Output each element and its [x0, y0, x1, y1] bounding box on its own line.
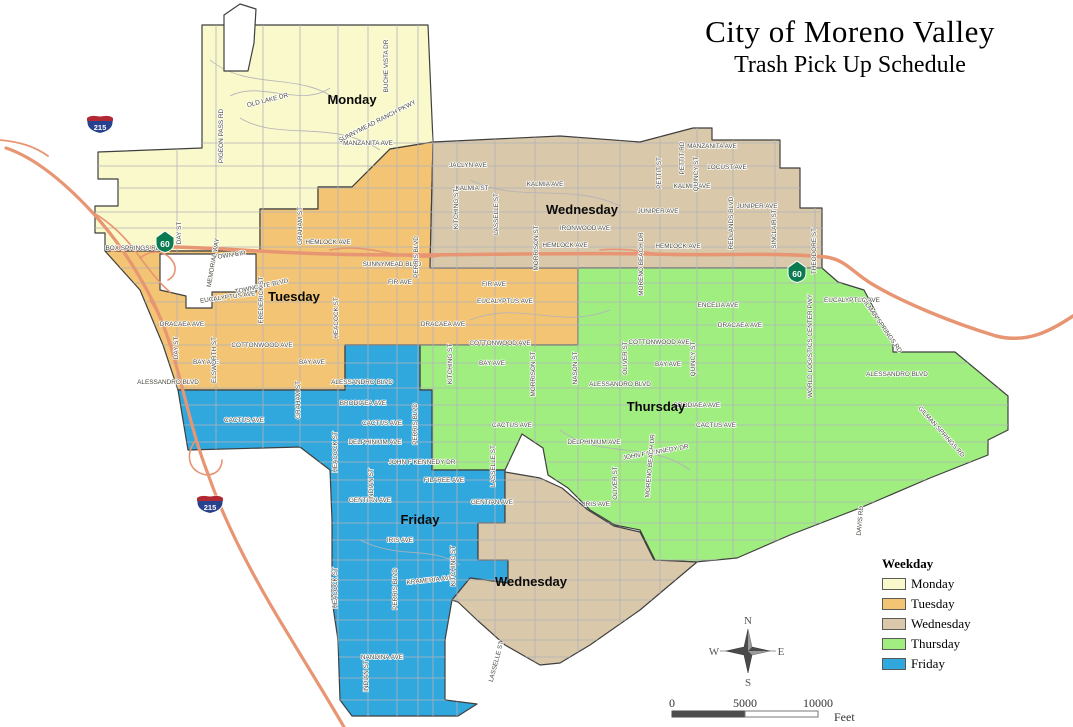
street-label: EUCALYPTUS AVE — [477, 298, 533, 305]
street-label: INDIAN ST — [368, 468, 375, 500]
street-label: LOCUST AVE — [707, 164, 747, 171]
legend-label: Friday — [911, 656, 945, 672]
street-label: ENCELIA AVE — [698, 302, 739, 309]
svg-text:60: 60 — [792, 269, 802, 279]
street-label: JOHN F KENNEDY DR — [389, 459, 456, 466]
street-label: JUNIPER AVE — [736, 203, 777, 210]
svg-text:215: 215 — [94, 123, 107, 132]
street-label: OLIVER ST — [612, 466, 619, 499]
street-label: KALMIA AVE — [674, 183, 711, 190]
street-label: HEACOCK ST — [332, 567, 339, 609]
scale-unit: Feet — [834, 710, 855, 724]
street-label: GRAHAM ST — [297, 207, 304, 245]
legend-swatch — [882, 578, 906, 590]
street-label: DELPHINIUM AVE — [567, 439, 620, 446]
legend: Weekday MondayTuesdayWednesdayThursdayFr… — [882, 556, 971, 676]
street-label: NASON ST — [572, 352, 579, 385]
scale-tick: 10000 — [803, 696, 833, 710]
street-label: GENTIAN AVE — [471, 499, 513, 506]
street-label: BAY AVE — [479, 360, 505, 367]
street-label: LASSELLE ST — [488, 640, 506, 682]
scale-ticks: 0500010000 — [669, 696, 833, 710]
street-label: BAY AVE — [299, 359, 325, 366]
compass-w: W — [709, 646, 720, 658]
legend-label: Tuesday — [911, 596, 955, 612]
street-label: LASSELLE ST — [490, 445, 497, 487]
street-label: BUCHE VISTA DR — [383, 39, 390, 92]
street-label: IRIS AVE — [584, 501, 610, 508]
street-label: HEACOCK ST — [332, 431, 339, 473]
page: { "title": { "line1": "City of Moreno Va… — [0, 0, 1073, 727]
zone-label: Friday — [400, 512, 440, 527]
zone-label: Thursday — [627, 399, 686, 414]
street-label: KITCHING ST — [447, 344, 454, 385]
zone-label: Wednesday — [495, 574, 568, 589]
legend-label: Thursday — [911, 636, 960, 652]
street-label: KALMIA AVE — [527, 181, 564, 188]
street-label: FREDERICK ST — [258, 276, 265, 323]
street-label: CACTUS AVE — [696, 422, 736, 429]
street-label: COTTONWOOD AVE — [628, 339, 689, 346]
interstate-215-shield: 215 — [197, 496, 223, 514]
street-label: HEMLOCK AVE — [542, 242, 587, 249]
svg-text:215: 215 — [204, 503, 217, 512]
zone-label: Wednesday — [546, 202, 619, 217]
zone-label: Monday — [327, 92, 377, 107]
street-label: ALESSANDRO BLVD — [331, 379, 393, 386]
street-label: THEODORE ST — [811, 228, 818, 274]
street-label: IRIS AVE — [387, 537, 413, 544]
street-label: LASSELLE ST — [493, 193, 500, 235]
legend-swatch — [882, 638, 906, 650]
street-label: SINCLAIR ST — [771, 209, 778, 249]
street-label: MORRISON ST — [533, 225, 540, 270]
street-label: BOX SPRINGS RD — [105, 245, 160, 252]
street-label: PERRIS BLVD — [412, 403, 419, 445]
street-label: DELPHINIUM AVE — [348, 439, 401, 446]
street-label: PERRIS BLVD — [392, 568, 399, 610]
street-label: PIGEON PASS RD — [218, 109, 225, 164]
legend-heading: Weekday — [882, 556, 971, 572]
street-label: NANDINA AVE — [361, 654, 403, 661]
compass-n: N — [744, 615, 752, 627]
street-label: FIR AVE — [482, 281, 506, 288]
legend-item: Monday — [882, 576, 971, 592]
zone-label: Tuesday — [268, 289, 321, 304]
legend-swatch — [882, 598, 906, 610]
street-label: HEMLOCK AVE — [655, 243, 700, 250]
street-label: HEACOCK ST — [333, 297, 340, 339]
map-title-line2: Trash Pick Up Schedule — [640, 52, 1060, 79]
street-label: CACTUS AVE — [492, 422, 532, 429]
map-title: City of Moreno Valley Trash Pick Up Sche… — [640, 14, 1060, 79]
svg-text:60: 60 — [160, 239, 170, 249]
street-label: DRACAEA AVE — [718, 322, 762, 329]
interstate-215-shield: 215 — [87, 116, 113, 134]
street-label: CACTUS AVE — [224, 417, 264, 424]
street-label: PETTIT ST — [656, 157, 663, 189]
street-label: EUCALYPTUS AVE — [824, 297, 880, 304]
street-label: DRACAEA AVE — [421, 321, 465, 328]
street-label: QUINCY ST — [693, 157, 700, 192]
street-label: FILAREE AVE — [424, 477, 464, 484]
street-label: JACLYN AVE — [449, 162, 487, 169]
legend-swatch — [882, 658, 906, 670]
street-label: MORRISON ST — [530, 351, 537, 396]
street-label: BRODIAEA AVE — [340, 400, 386, 407]
street-label: PETTIT RD — [679, 141, 686, 174]
map-title-line1: City of Moreno Valley — [640, 14, 1060, 50]
street-label: DAVIS RD — [856, 505, 866, 536]
street-label: FIR AVE — [388, 279, 412, 286]
street-label: ELSWORTH ST — [211, 337, 218, 383]
street-label: MANZANITA AVE — [687, 143, 737, 150]
street-label: DAY ST — [173, 337, 180, 360]
compass-rose: N S W E — [709, 615, 785, 689]
street-label: DRACAEA AVE — [160, 321, 204, 328]
legend-item: Tuesday — [882, 596, 971, 612]
legend-item: Thursday — [882, 636, 971, 652]
street-label: MANZANITA AVE — [343, 140, 393, 147]
legend-swatch — [882, 618, 906, 630]
street-label: HEMLOCK AVE — [305, 239, 350, 246]
street-label: COTTONWOOD AVE — [231, 342, 292, 349]
scale-tick: 5000 — [733, 696, 757, 710]
street-label: DAY ST — [176, 222, 183, 245]
street-label: CACTUS AVE — [362, 420, 402, 427]
street-label: ALESSANDRO BLVD — [866, 371, 928, 378]
street-label: KALMIA ST — [455, 185, 488, 192]
legend-label: Monday — [911, 576, 954, 592]
compass-e: E — [778, 646, 785, 658]
street-label: REDLANDS BLVD — [728, 196, 735, 249]
street-label: QUINCY ST — [690, 342, 697, 377]
scale-tick: 0 — [669, 696, 675, 710]
street-label: BAY AVE — [655, 361, 681, 368]
legend-label: Wednesday — [911, 616, 971, 632]
legend-item: Friday — [882, 656, 971, 672]
legend-item: Wednesday — [882, 616, 971, 632]
street-label: JUNIPER AVE — [637, 208, 678, 215]
street-label: COTTONWOOD AVE — [469, 340, 530, 347]
street-label: OLIVER ST — [622, 341, 629, 374]
street-label: ALESSANDRO BLVD — [589, 381, 651, 388]
street-label: PERRIS BLVD — [413, 236, 420, 278]
street-label: KITCHING ST — [450, 546, 457, 587]
street-label: KITCHING ST — [453, 189, 460, 230]
compass-s: S — [745, 677, 751, 689]
street-label: ALESSANDRO BLVD — [137, 379, 199, 386]
street-label: WORLD LOGISTICS CENTER PWY — [807, 293, 814, 398]
street-label: INDIAN ST — [363, 660, 370, 692]
scale-bar: 0500010000 Feet — [669, 696, 855, 724]
street-label: MORENO BEACH DR — [638, 232, 645, 296]
street-label: GRAHAM ST — [295, 381, 302, 419]
legend-items: MondayTuesdayWednesdayThursdayFriday — [882, 576, 971, 672]
street-label: IRONWOOD AVE — [560, 225, 610, 232]
